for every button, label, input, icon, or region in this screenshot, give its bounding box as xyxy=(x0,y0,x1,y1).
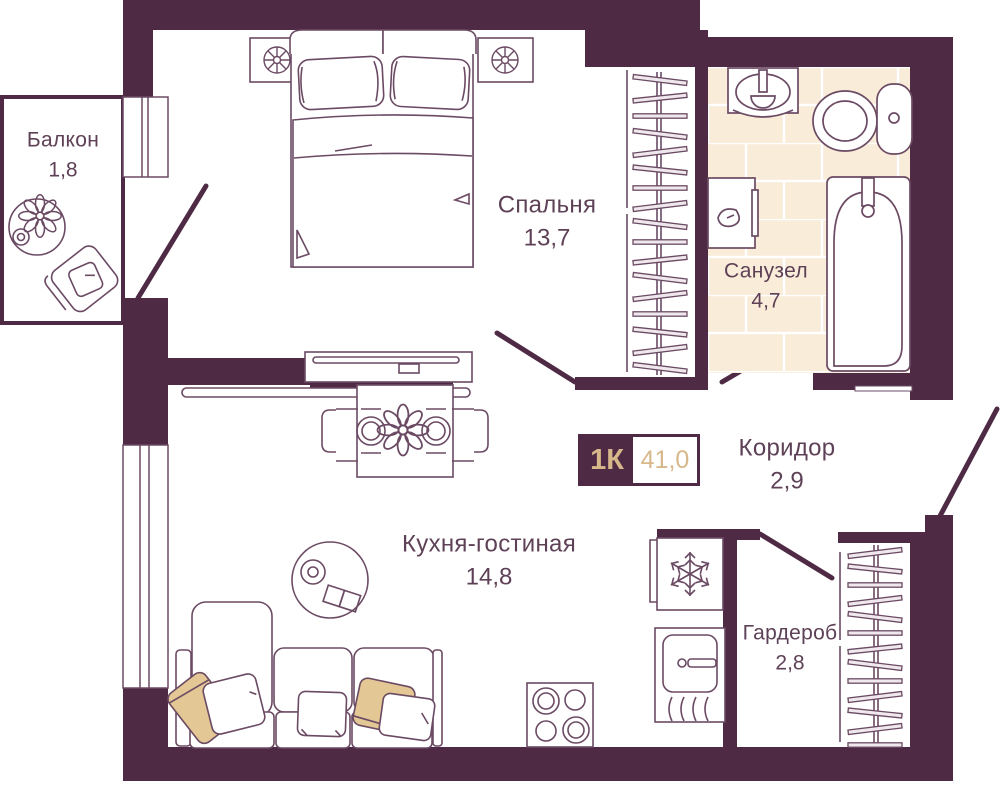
living-room-window xyxy=(123,445,168,688)
coffee-table-icon xyxy=(292,542,368,618)
wall-niche-inset xyxy=(855,386,912,391)
room-label-wardrobe: Гардероб 2,8 xyxy=(743,623,838,674)
double-bed-icon xyxy=(290,30,476,267)
tv-icon xyxy=(305,352,472,382)
room-area: 2,8 xyxy=(743,653,838,674)
room-area: 4,7 xyxy=(724,291,808,312)
room-label-corridor: Коридор 2,9 xyxy=(739,437,836,494)
room-label-balcony: Балкон 1,8 xyxy=(27,130,99,181)
room-label-kitchen-living: Кухня-гостиная 14,8 xyxy=(402,533,576,590)
wardrobe-door-swing xyxy=(760,534,832,578)
bedroom-door-swing xyxy=(497,333,575,382)
balcony-door-swing xyxy=(138,186,206,298)
room-name: Балкон xyxy=(27,130,99,151)
room-area: 13,7 xyxy=(498,227,597,251)
bath-sink-icon xyxy=(728,68,798,117)
nightstand-right-icon xyxy=(478,38,533,82)
room-name: Гардероб xyxy=(743,623,838,644)
bathtub-icon xyxy=(827,177,910,371)
corner-sofa-icon xyxy=(165,602,442,748)
wardrobe-hanger-rack-icon xyxy=(848,548,902,748)
bedroom-zone xyxy=(250,30,687,375)
entry-door-swing xyxy=(940,409,997,516)
washing-machine-icon xyxy=(708,178,758,248)
room-name: Спальня xyxy=(498,194,597,218)
room-area: 14,8 xyxy=(402,566,576,590)
room-name: Коридор xyxy=(739,437,836,461)
apartment-type-label: 1К xyxy=(581,437,633,483)
apartment-total-area: 41,0 xyxy=(633,437,697,483)
balcony-plant-table-icon xyxy=(9,195,65,255)
balcony-armchair-icon xyxy=(42,242,121,319)
kitchen-sink-icon xyxy=(655,628,725,722)
balcony-window xyxy=(123,97,168,177)
floorplan-page: Балкон 1,8 Спальня 13,7 Санузел 4,7 Кори… xyxy=(0,0,1001,786)
floorplan-drawing xyxy=(0,0,1001,786)
stove-icon xyxy=(527,683,593,747)
wardrobe-zone xyxy=(840,545,902,747)
apartment-type-badge: 1К 41,0 xyxy=(578,434,700,486)
room-label-bedroom: Спальня 13,7 xyxy=(498,194,597,251)
fridge-snowflake-icon xyxy=(650,538,723,610)
room-name: Санузел xyxy=(724,261,808,282)
dining-table-icon xyxy=(322,385,488,477)
room-name: Кухня-гостиная xyxy=(402,533,576,557)
bedroom-closet-rack-icon xyxy=(627,70,687,375)
room-area: 1,8 xyxy=(27,160,99,181)
room-label-bathroom: Санузел 4,7 xyxy=(724,261,808,312)
room-area: 2,9 xyxy=(739,470,836,494)
bathroom-zone xyxy=(708,67,912,373)
